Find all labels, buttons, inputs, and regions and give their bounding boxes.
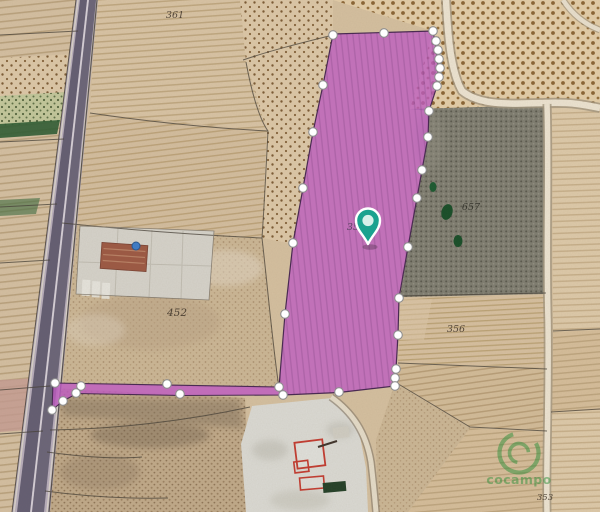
vertex-marker[interactable] [395, 294, 404, 303]
vertex-marker[interactable] [329, 31, 338, 40]
vertex-marker[interactable] [433, 82, 442, 91]
satellite-map[interactable]: 361 452 657 356 353 35 cocampo [0, 0, 600, 512]
vertex-marker[interactable] [404, 243, 413, 252]
label-field-361: 361 [166, 10, 184, 21]
vertex-marker[interactable] [380, 29, 389, 38]
vertex-marker[interactable] [72, 389, 81, 398]
vertex-marker[interactable] [429, 27, 438, 36]
vertex-marker[interactable] [289, 239, 298, 248]
vertex-marker[interactable] [163, 380, 172, 389]
vertex-marker[interactable] [176, 390, 185, 399]
pin-inner-circle [362, 215, 373, 226]
watermark-text: cocampo [486, 472, 551, 487]
vertex-marker[interactable] [434, 46, 443, 55]
vertex-marker[interactable] [425, 107, 434, 116]
vertex-marker[interactable] [299, 184, 308, 193]
label-field-657: 657 [462, 202, 481, 213]
vertex-marker[interactable] [309, 128, 318, 137]
vertex-marker[interactable] [281, 310, 290, 319]
vertex-marker[interactable] [418, 166, 427, 175]
vertex-marker[interactable] [392, 365, 401, 374]
vertex-marker[interactable] [424, 133, 433, 142]
vertex-marker[interactable] [394, 331, 403, 340]
map-viewport[interactable]: 361 452 657 356 353 35 cocampo [0, 0, 600, 512]
label-field-356: 356 [447, 324, 465, 335]
vertex-marker[interactable] [435, 73, 444, 82]
vertex-marker[interactable] [279, 391, 288, 400]
pin-shadow [363, 244, 378, 250]
label-field-452: 452 [166, 307, 187, 319]
vertex-marker[interactable] [436, 64, 445, 73]
vertex-marker[interactable] [275, 383, 284, 392]
vertex-marker[interactable] [319, 81, 328, 90]
vertex-marker[interactable] [51, 379, 60, 388]
vertex-marker[interactable] [391, 374, 400, 383]
vertex-marker[interactable] [59, 397, 68, 406]
label-field-353: 353 [537, 493, 553, 503]
vertex-marker[interactable] [413, 194, 422, 203]
vertex-marker[interactable] [435, 55, 444, 64]
vertex-marker[interactable] [391, 382, 400, 391]
vertex-marker[interactable] [432, 37, 441, 46]
vertex-marker[interactable] [48, 406, 57, 415]
vertex-marker[interactable] [335, 388, 344, 397]
